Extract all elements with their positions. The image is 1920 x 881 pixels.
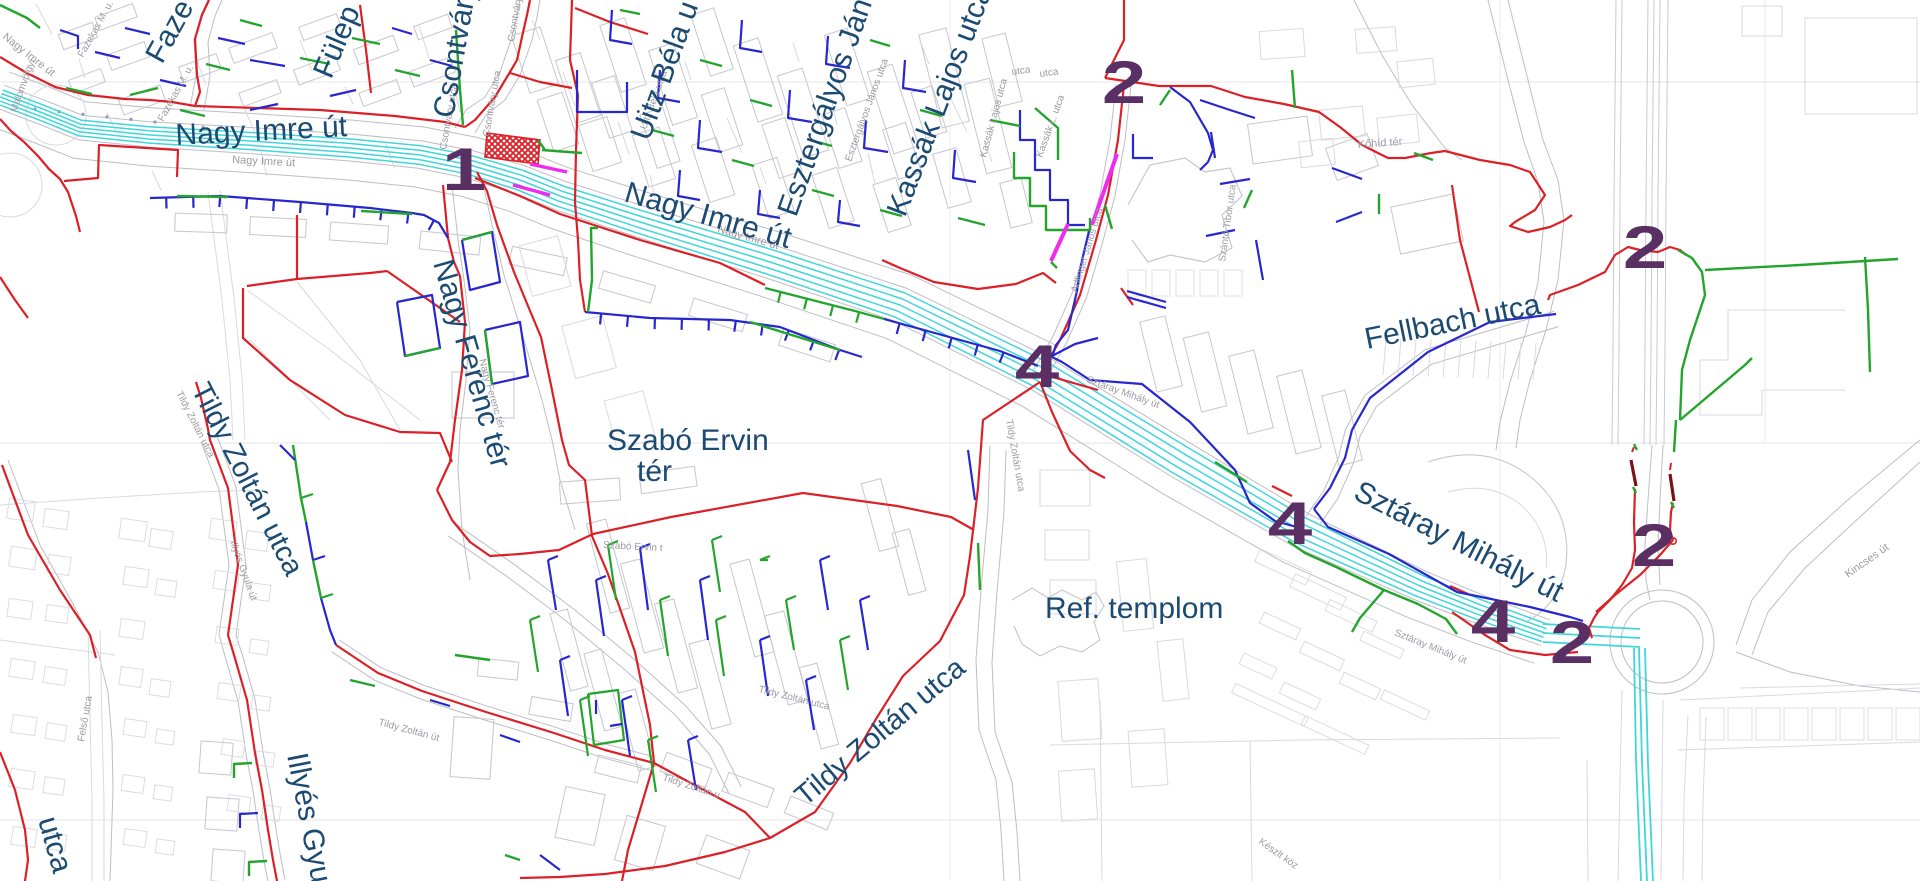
svg-text:4: 4 [1015,333,1059,400]
svg-text:4: 4 [1268,490,1312,557]
svg-text:2: 2 [1102,49,1146,116]
svg-text:Ref. templom: Ref. templom [1045,592,1223,625]
svg-text:tér: tér [637,455,672,488]
svg-text:2: 2 [1623,214,1667,281]
svg-text:2: 2 [1632,512,1676,579]
svg-text:2: 2 [1550,609,1594,676]
svg-text:4: 4 [1471,588,1515,655]
svg-text:Szabó Ervin: Szabó Ervin [607,424,769,457]
svg-text:1: 1 [442,136,486,203]
